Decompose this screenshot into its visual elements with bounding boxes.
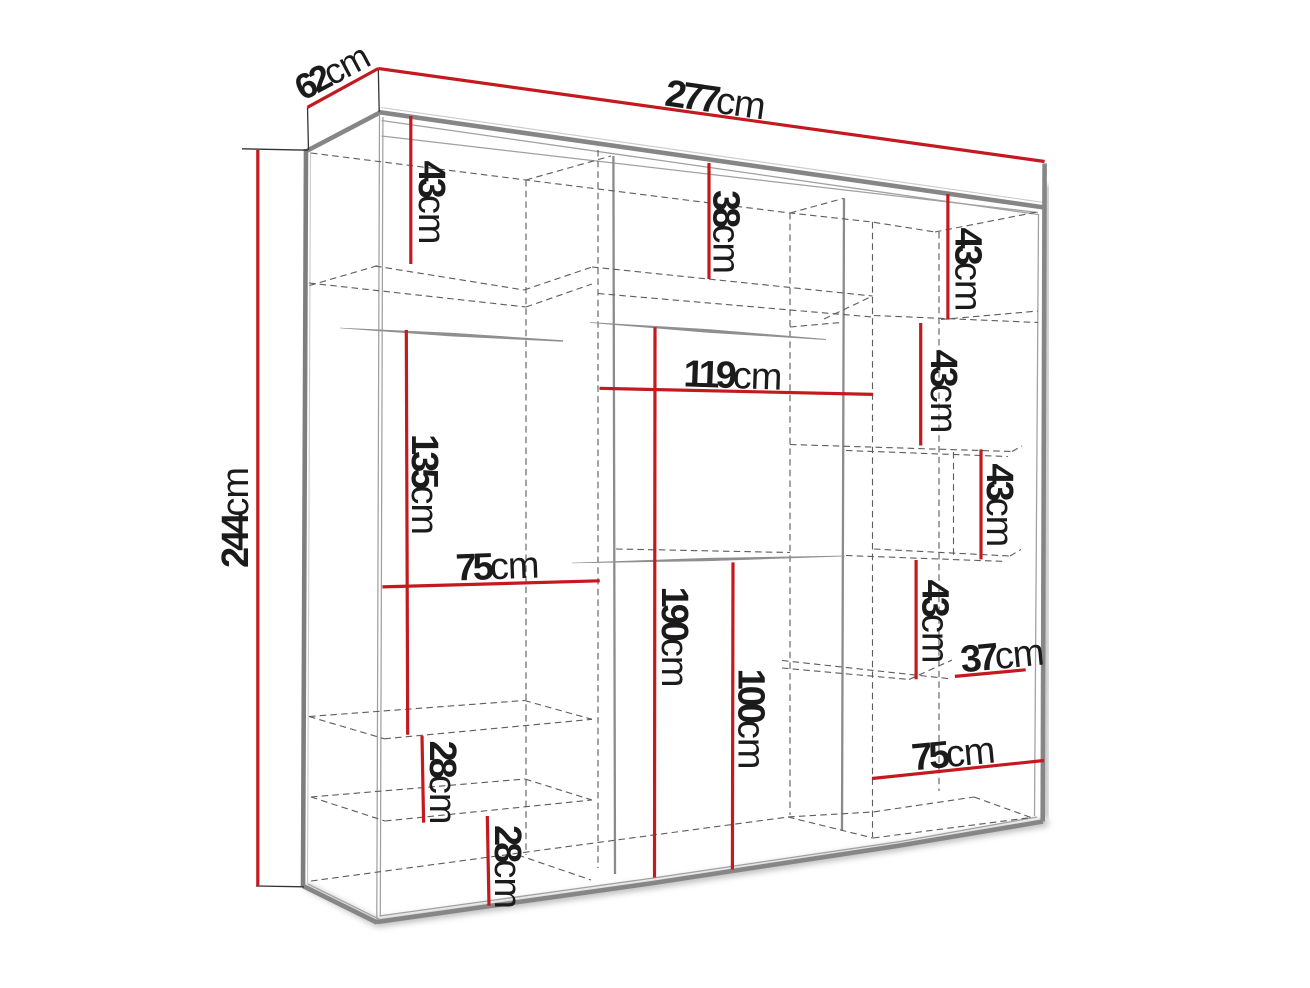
svg-text:75cm: 75cm [455,545,539,590]
svg-text:75cm: 75cm [910,730,997,780]
svg-text:43cm: 43cm [914,580,956,663]
svg-text:43cm: 43cm [978,463,1020,546]
svg-text:43cm: 43cm [410,161,452,244]
svg-text:119cm: 119cm [683,353,782,398]
svg-text:43cm: 43cm [922,350,964,433]
svg-text:244cm: 244cm [215,468,257,568]
svg-text:37cm: 37cm [959,632,1046,682]
svg-text:100cm: 100cm [730,668,772,768]
svg-text:38cm: 38cm [705,190,747,273]
svg-text:28cm: 28cm [421,741,463,824]
svg-text:135cm: 135cm [403,434,445,534]
svg-text:190cm: 190cm [653,586,695,686]
svg-text:43cm: 43cm [947,228,989,311]
svg-text:28cm: 28cm [486,825,528,908]
